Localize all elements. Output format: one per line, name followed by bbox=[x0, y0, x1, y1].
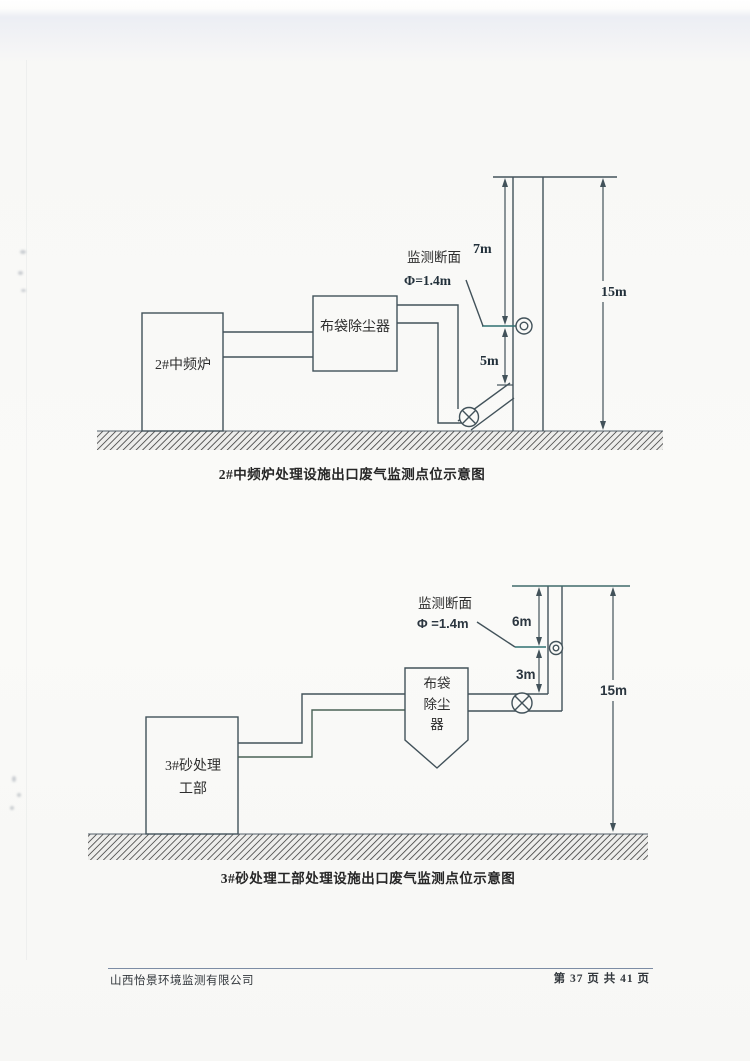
monitoring-port-icon bbox=[550, 642, 563, 655]
dim-arrow bbox=[536, 637, 542, 646]
dim-arrow bbox=[536, 684, 542, 693]
sand-workshop-label-line1: 3#砂处理 bbox=[165, 758, 221, 774]
section-label-line1: 监测断面 bbox=[418, 596, 472, 611]
fan-icon bbox=[512, 693, 532, 713]
dimension-7m bbox=[502, 178, 508, 325]
dust-collector-label-line2: 除尘 bbox=[424, 697, 451, 712]
pipe-lower bbox=[397, 323, 464, 423]
dim-arrow bbox=[600, 178, 606, 187]
dim-label-7m: 7m bbox=[473, 242, 492, 257]
dim-arrow bbox=[536, 587, 542, 596]
dimension-3m bbox=[536, 649, 542, 693]
dimension-15m bbox=[600, 178, 606, 430]
sand-workshop-box bbox=[146, 717, 238, 834]
duct-line bbox=[238, 694, 405, 743]
label-leader-line bbox=[466, 280, 483, 326]
dust-collector-label-line1: 布袋 bbox=[424, 676, 451, 691]
dim-arrow bbox=[610, 823, 616, 832]
monitoring-port-icon bbox=[516, 318, 532, 334]
duct-line bbox=[238, 710, 405, 757]
diagram1: 2#中频炉 布袋除尘器 监测断面 Φ=1.4m 7m 5m 15m bbox=[97, 177, 663, 450]
dust-collector-label-line3: 器 bbox=[430, 717, 444, 732]
diagram1-caption: 2#中频炉处理设施出口废气监测点位示意图 bbox=[97, 463, 607, 483]
dim-label-15m: 15m bbox=[600, 683, 627, 698]
dim-label-5m: 5m bbox=[480, 354, 499, 369]
section-label-line1: 监测断面 bbox=[407, 250, 461, 265]
footer-page-number: 第 37 页 共 41 页 bbox=[554, 970, 650, 986]
dim-arrow bbox=[502, 375, 508, 384]
dimension-6m bbox=[536, 587, 542, 646]
dim-label-15m: 15m bbox=[601, 285, 627, 300]
ground-band bbox=[88, 834, 648, 860]
dim-arrow bbox=[502, 316, 508, 325]
dim-arrow bbox=[600, 421, 606, 430]
footer-rule bbox=[108, 968, 653, 969]
dimension-15m bbox=[610, 587, 616, 832]
dim-arrow bbox=[536, 649, 542, 658]
dimension-5m bbox=[497, 328, 513, 385]
dim-arrow bbox=[502, 178, 508, 187]
furnace-label: 2#中频炉 bbox=[155, 357, 211, 373]
footer-company-name: 山西怡景环境监测有限公司 bbox=[110, 972, 254, 988]
monitoring-diagrams-canvas: 2#中频炉 布袋除尘器 监测断面 Φ=1.4m 7m 5m 15m bbox=[0, 0, 750, 1061]
scanned-report-page: 2#中频炉 布袋除尘器 监测断面 Φ=1.4m 7m 5m 15m bbox=[0, 0, 750, 1061]
dim-arrow bbox=[502, 328, 508, 337]
section-label-line2: Φ =1.4m bbox=[417, 616, 469, 631]
dim-label-3m: 3m bbox=[516, 667, 536, 682]
dust-collector-label: 布袋除尘器 bbox=[320, 319, 390, 335]
diagram2-caption: 3#砂处理工部处理设施出口废气监测点位示意图 bbox=[88, 867, 648, 887]
diagram2: 3#砂处理 工部 布袋 除尘 器 监测断面 Φ =1.4m 6m 3m 15m bbox=[88, 586, 648, 860]
label-leader-line bbox=[477, 622, 515, 647]
sand-workshop-label-line2: 工部 bbox=[179, 781, 207, 797]
fan-icon bbox=[460, 408, 479, 427]
dim-label-6m: 6m bbox=[512, 614, 532, 629]
section-label-line2: Φ=1.4m bbox=[404, 273, 452, 288]
pipe-upper bbox=[397, 305, 458, 409]
ground-band bbox=[97, 431, 663, 450]
dim-arrow bbox=[610, 587, 616, 596]
